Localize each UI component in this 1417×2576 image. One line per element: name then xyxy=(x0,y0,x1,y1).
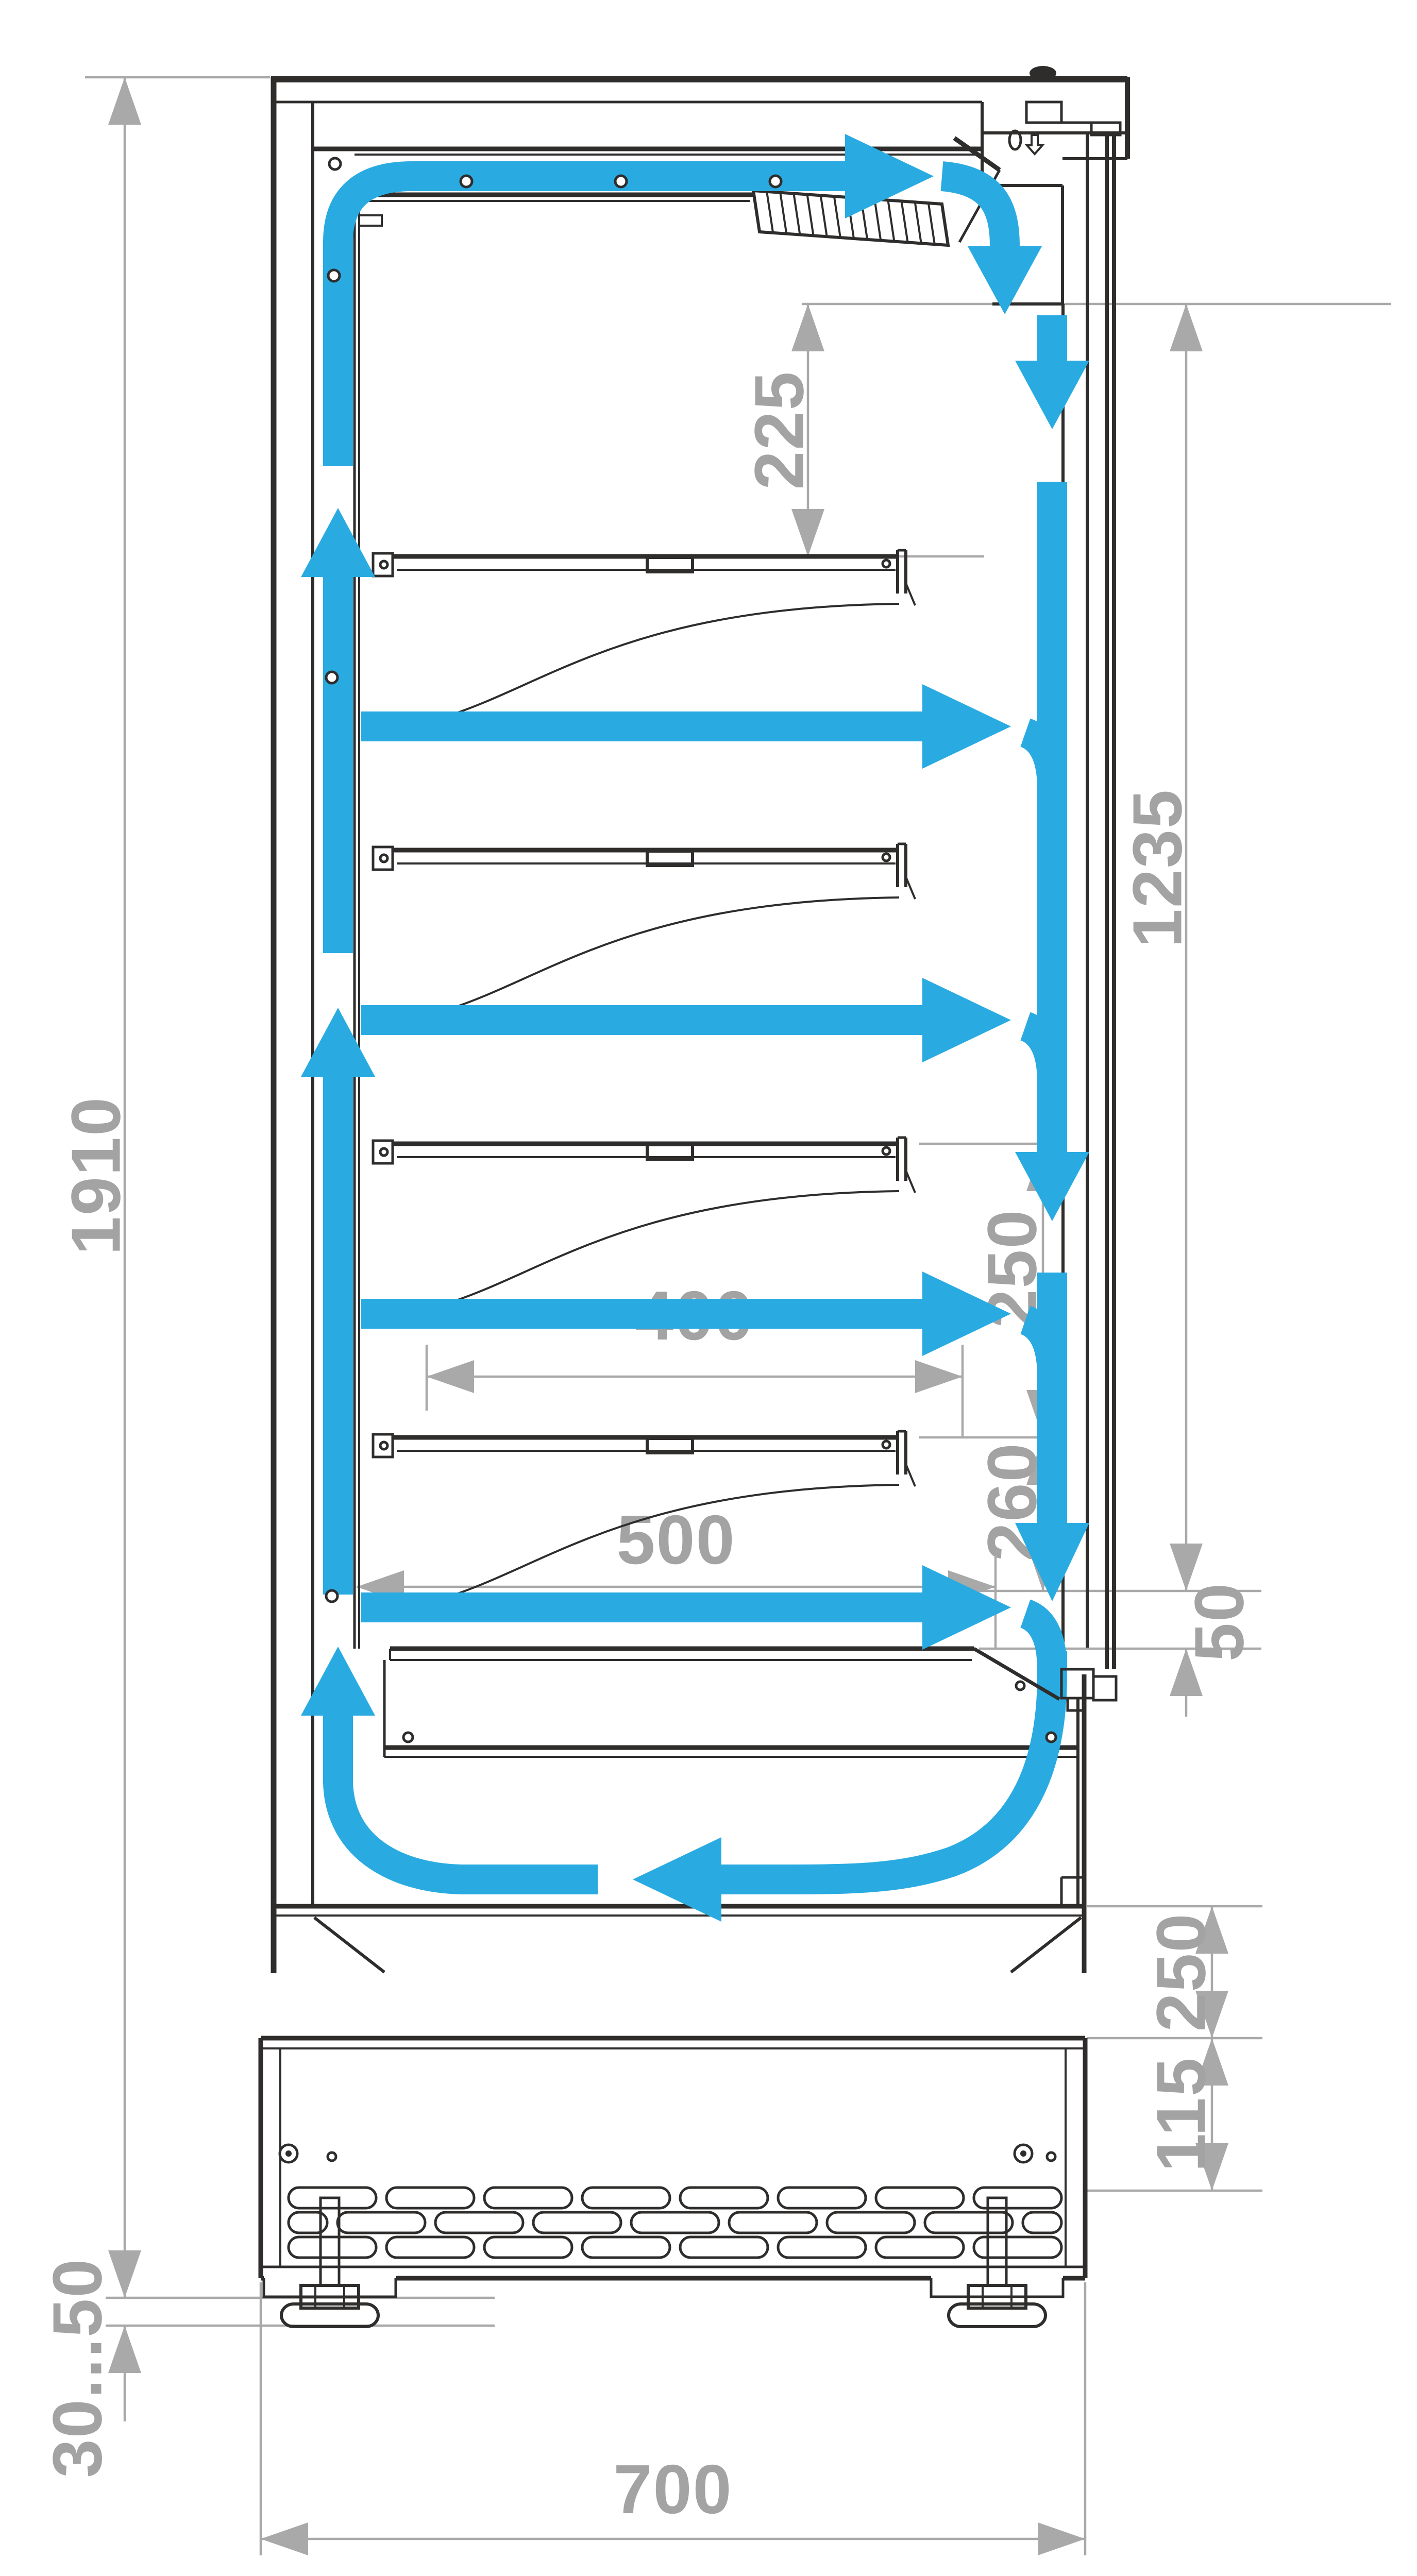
arrow-up-icon xyxy=(791,304,824,351)
cabinet-cross-section-diagram: 1910 30...50 225 1235 xyxy=(0,0,1417,2576)
grille-slot xyxy=(631,2212,719,2233)
arrow-up-icon xyxy=(1170,304,1203,351)
grille-slot xyxy=(533,2212,621,2233)
screw-icon xyxy=(883,560,890,567)
shelf-airflow-4 xyxy=(361,1565,1052,1670)
cabinet-linework xyxy=(261,66,1127,2297)
shelf-air-arc xyxy=(1025,733,1052,789)
arrow-left-icon xyxy=(261,2522,308,2555)
dimension-overall-height: 1910 xyxy=(57,77,271,2298)
screw-icon xyxy=(1016,1682,1024,1690)
shelf-airflow-2 xyxy=(361,978,1052,1083)
dimension-opening-height: 1235 xyxy=(979,304,1261,1591)
door-bottom-closer xyxy=(1093,1676,1116,1700)
straightener-fin xyxy=(929,203,935,244)
grille-slot xyxy=(582,2188,670,2208)
grille-slot xyxy=(435,2212,523,2233)
shelves xyxy=(361,550,915,1612)
screw-icon xyxy=(461,176,472,187)
dimension-machine-compartment: 250 xyxy=(1087,1906,1262,2038)
arrow-down-icon xyxy=(791,509,824,556)
grille-slot xyxy=(582,2237,670,2258)
grille-slot xyxy=(680,2188,768,2208)
grille-slot xyxy=(876,2188,964,2208)
airflow-down-arrow-icon xyxy=(1015,361,1089,429)
dimension-overall-depth: 700 xyxy=(261,2282,1085,2555)
grille-slot xyxy=(386,2188,474,2208)
foot-threaded-rod xyxy=(320,2198,339,2285)
straightener-fin xyxy=(794,194,800,235)
drawing-canvas: 1910 30...50 225 1235 xyxy=(0,0,1417,2576)
dimension-label-foot-range: 30...50 xyxy=(39,2258,116,2478)
shelf-row-1 xyxy=(361,550,915,731)
grille-slot xyxy=(484,2188,572,2208)
door-seal-arrow-icon xyxy=(1027,135,1042,154)
adjustable-foot-left xyxy=(281,2198,378,2327)
screw-icon xyxy=(380,561,387,568)
hinge-pin-icon xyxy=(1030,66,1056,80)
dimension-label-overall-height: 1910 xyxy=(57,1096,135,1255)
screw-icon xyxy=(326,672,338,683)
grille-slot xyxy=(778,2237,866,2258)
dimension-label-deck-depth: 500 xyxy=(616,1501,735,1579)
straightener-fin xyxy=(834,196,840,238)
screw-icon xyxy=(403,1733,413,1742)
grille-slot xyxy=(876,2237,964,2258)
straightener-fin xyxy=(874,199,881,241)
arrow-left-icon xyxy=(427,1360,474,1393)
straightener-fin xyxy=(902,201,908,242)
dimension-label-opening-height: 1235 xyxy=(1119,789,1196,947)
straightener-fin xyxy=(821,195,827,236)
airflow xyxy=(301,134,1089,1922)
panel-hook xyxy=(359,215,382,226)
grille-slot xyxy=(1023,2212,1061,2233)
screw-icon xyxy=(326,1590,338,1602)
grille-slot xyxy=(338,2212,425,2233)
grille-slot xyxy=(778,2188,866,2208)
grille-slot xyxy=(484,2237,572,2258)
airflow-left-arrow-icon xyxy=(633,1837,721,1922)
dimension-deck-depth: 500 xyxy=(357,1501,996,1650)
glass-door xyxy=(1107,133,1114,1669)
screw-icon xyxy=(328,2153,336,2161)
dimension-label-overall-depth: 700 xyxy=(613,2450,732,2528)
dimension-label-top-gap: 225 xyxy=(740,370,818,489)
straightener-fin xyxy=(767,192,773,233)
shelf-airflow-1 xyxy=(361,684,1052,789)
foot-channel-right xyxy=(931,2278,1063,2297)
ventilation-grille xyxy=(289,2188,1061,2258)
grille-slot xyxy=(729,2212,817,2233)
grille-slot xyxy=(827,2212,915,2233)
dimension-air-gap: 50 xyxy=(979,1582,1261,1717)
airflow-right-arrow-icon xyxy=(922,684,1011,769)
arrow-up-icon xyxy=(108,77,141,125)
straightener-fin xyxy=(807,194,814,235)
ring-screw-center xyxy=(285,2150,292,2157)
shelf-row-2 xyxy=(361,844,915,1024)
bottom-return-band xyxy=(721,1651,1052,1879)
dimension-label-air-gap: 50 xyxy=(1180,1582,1258,1662)
foot-channel-left xyxy=(264,2278,396,2297)
canopy-notch xyxy=(1026,102,1061,123)
screw-icon xyxy=(1047,2153,1055,2161)
dimension-label-grille-height: 115 xyxy=(1142,2057,1220,2172)
arrow-right-icon xyxy=(915,1360,963,1393)
ring-screw-center xyxy=(1020,2150,1026,2157)
corner-gusset-right xyxy=(1011,1918,1081,1972)
adjustable-foot-right xyxy=(949,2198,1045,2327)
airflow-down-arrow-icon xyxy=(1015,1523,1089,1601)
price-tag-ticket xyxy=(906,583,915,605)
return-air-band xyxy=(338,1716,598,1879)
shelf-row-4 xyxy=(361,1431,915,1612)
straightener-fin xyxy=(915,202,921,243)
dimension-label-machine-compartment: 250 xyxy=(1142,1912,1220,2031)
dimension-grille-height: 115 xyxy=(1087,2038,1262,2191)
straightener-fin xyxy=(780,193,786,234)
grille-slot xyxy=(680,2237,768,2258)
grille-slot xyxy=(386,2237,474,2258)
grille-slot xyxy=(289,2237,376,2258)
corner-gusset-left xyxy=(314,1918,384,1972)
screw-icon xyxy=(1047,1733,1056,1742)
machine-compartment xyxy=(261,2038,1085,2297)
straightener-fin xyxy=(888,200,894,242)
air-curtain-band xyxy=(942,176,1005,246)
screw-icon xyxy=(328,270,340,281)
arrow-right-icon xyxy=(1038,2522,1085,2555)
screw-icon xyxy=(770,176,781,187)
screw-icon xyxy=(615,176,627,187)
grille-slot xyxy=(925,2212,1013,2233)
dimension-foot-range: 30...50 xyxy=(39,2258,495,2478)
screw-icon xyxy=(329,158,341,170)
